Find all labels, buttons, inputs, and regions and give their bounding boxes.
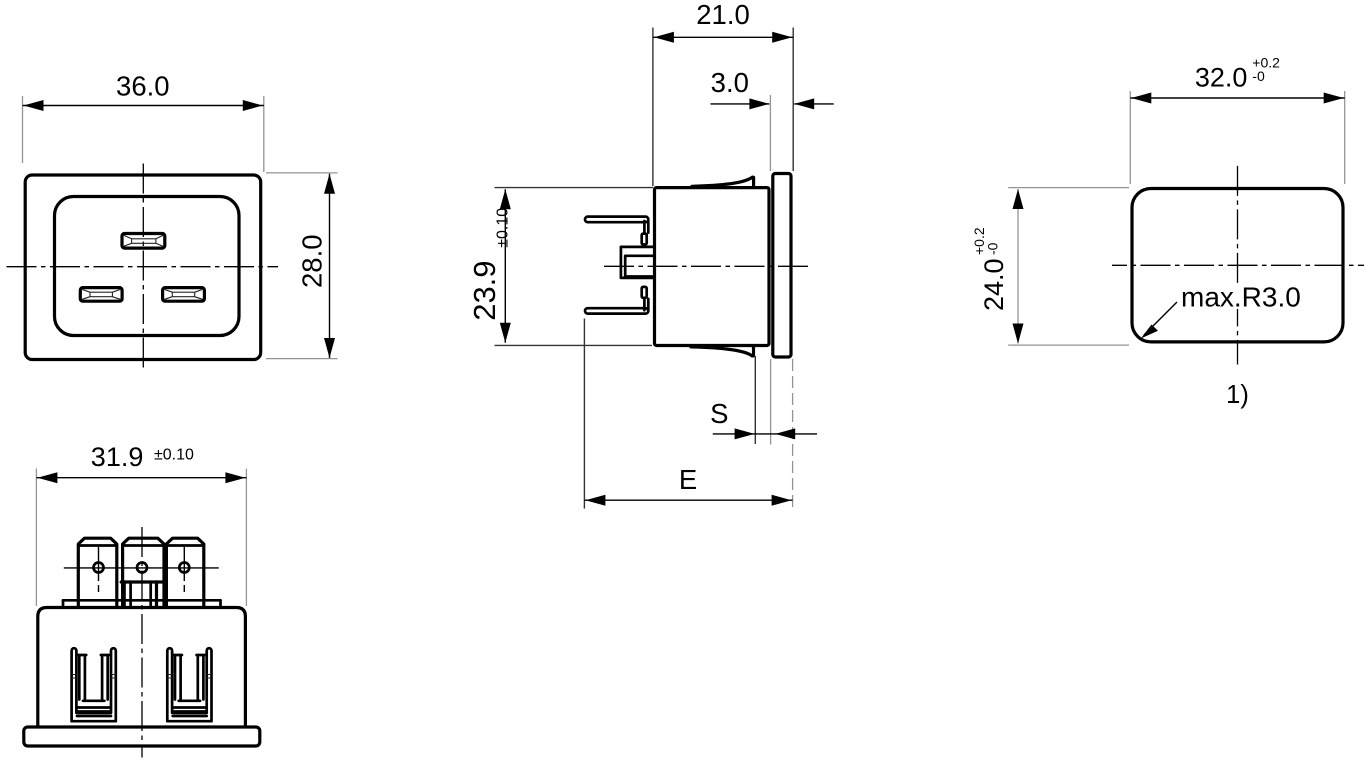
- svg-text:24.0: 24.0: [979, 258, 1009, 311]
- svg-text:28.0: 28.0: [297, 234, 328, 288]
- svg-text:±0.10: ±0.10: [154, 447, 194, 464]
- svg-text:S: S: [710, 398, 728, 429]
- svg-text:-0: -0: [985, 242, 1001, 255]
- svg-text:±0.10: ±0.10: [494, 208, 511, 248]
- svg-text:max.R3.0: max.R3.0: [1181, 282, 1301, 313]
- svg-text:21.0: 21.0: [696, 0, 750, 30]
- svg-text:E: E: [679, 464, 697, 495]
- svg-text:31.9: 31.9: [91, 442, 144, 472]
- svg-text:1): 1): [1226, 381, 1249, 409]
- svg-text:3.0: 3.0: [711, 67, 749, 98]
- svg-text:36.0: 36.0: [116, 71, 170, 102]
- svg-text:32.0: 32.0: [1195, 62, 1248, 92]
- svg-text:-0: -0: [1252, 68, 1265, 84]
- svg-text:23.9: 23.9: [467, 260, 502, 320]
